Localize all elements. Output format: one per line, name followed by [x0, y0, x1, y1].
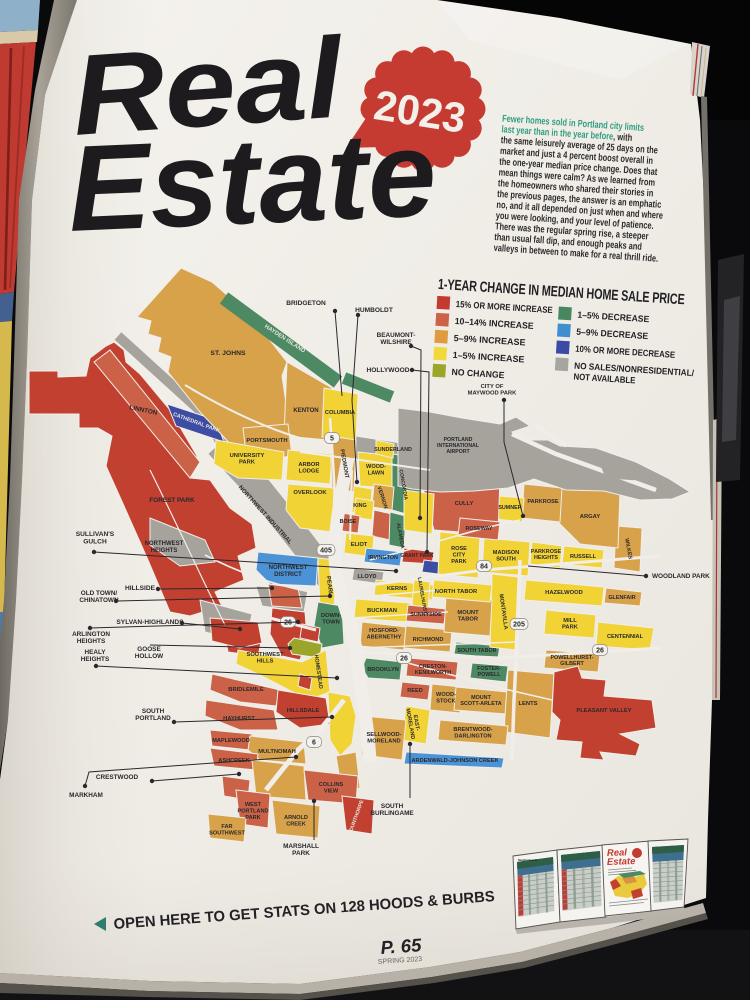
svg-text:26: 26 — [400, 656, 408, 663]
svg-text:REED: REED — [407, 688, 423, 694]
svg-text:HOSFORD-ABERNETHY: HOSFORD-ABERNETHY — [367, 628, 402, 640]
svg-text:MADISONSOUTH: MADISONSOUTH — [493, 550, 519, 562]
svg-text:SYLVAN-HIGHLANDS: SYLVAN-HIGHLANDS — [116, 619, 184, 626]
svg-text:HUMBOLDT: HUMBOLDT — [355, 307, 393, 314]
svg-text:COLUMBIA: COLUMBIA — [325, 410, 355, 416]
svg-text:CULLY: CULLY — [455, 501, 474, 507]
svg-text:CRESTON-KENILWORTH: CRESTON-KENILWORTH — [415, 664, 451, 676]
svg-text:SOUTH TABOR: SOUTH TABOR — [457, 648, 496, 654]
svg-text:SELLWOOD-MORELAND: SELLWOOD-MORELAND — [366, 732, 401, 745]
svg-text:MULTNOMAH: MULTNOMAH — [258, 749, 296, 755]
svg-text:MILLPARK: MILLPARK — [562, 618, 579, 631]
svg-text:5: 5 — [330, 436, 334, 443]
svg-text:ROSECITYPARK: ROSECITYPARK — [451, 546, 467, 565]
svg-text:Estate: Estate — [607, 856, 637, 868]
svg-text:GLENFAIR: GLENFAIR — [608, 595, 635, 601]
svg-text:RICHMOND: RICHMOND — [413, 637, 444, 643]
svg-text:BRIDGETON: BRIDGETON — [286, 300, 326, 307]
svg-text:WOODLAND PARK: WOODLAND PARK — [652, 573, 710, 580]
svg-text:MAPLEWOOD: MAPLEWOOD — [212, 738, 250, 744]
svg-text:Neighborhoods: Neighborhoods — [518, 858, 538, 862]
svg-text:ST. JOHNS: ST. JOHNS — [210, 350, 246, 357]
svg-text:ELIOT: ELIOT — [351, 542, 368, 548]
svg-text:HILLSDALE: HILLSDALE — [287, 708, 320, 714]
svg-text:FOREST PARK: FOREST PARK — [149, 497, 195, 504]
svg-text:405: 405 — [320, 548, 332, 555]
svg-text:RUSSELL: RUSSELL — [570, 554, 597, 560]
svg-text:6: 6 — [312, 740, 316, 747]
svg-text:DOWN-TOWN: DOWN-TOWN — [321, 613, 341, 626]
svg-text:CRESTWOOD: CRESTWOOD — [96, 774, 139, 781]
svg-text:BRENTWOOD-DARLINGTON: BRENTWOOD-DARLINGTON — [453, 727, 492, 739]
svg-text:HAZELWOOD: HAZELWOOD — [545, 590, 583, 596]
svg-text:PARKROSE: PARKROSE — [527, 499, 559, 505]
svg-text:HILLSIDE: HILLSIDE — [125, 585, 156, 592]
svg-text:BOISE: BOISE — [340, 519, 357, 525]
svg-text:KERNS: KERNS — [387, 586, 407, 592]
svg-text:PLEASANT VALLEY: PLEASANT VALLEY — [576, 708, 631, 714]
svg-text:IRVINGTON: IRVINGTON — [368, 555, 398, 561]
svg-text:ARGAY: ARGAY — [580, 514, 601, 520]
svg-text:OVERLOOK: OVERLOOK — [293, 490, 327, 496]
svg-text:84: 84 — [480, 564, 488, 571]
svg-text:PORTSMOUTH: PORTSMOUTH — [246, 438, 287, 444]
svg-text:CENTENNIAL: CENTENNIAL — [607, 634, 644, 640]
svg-text:NORTH TABOR: NORTH TABOR — [435, 589, 478, 595]
svg-text:GOOSEHOLLOW: GOOSEHOLLOW — [135, 646, 164, 660]
svg-text:WOOD-STOCK: WOOD-STOCK — [436, 692, 456, 704]
svg-text:ARBORLODGE: ARBORLODGE — [298, 462, 320, 475]
svg-text:ROSEWAY: ROSEWAY — [465, 526, 492, 532]
svg-text:GRANT PARK: GRANT PARK — [401, 553, 434, 559]
svg-text:KENTON: KENTON — [293, 408, 318, 414]
svg-text:MARKHAM: MARKHAM — [69, 792, 103, 799]
svg-text:SUNDERLAND: SUNDERLAND — [374, 447, 412, 453]
svg-text:OLD TOWN/CHINATOWN: OLD TOWN/CHINATOWN — [79, 590, 119, 604]
svg-text:BRIDLEMILE: BRIDLEMILE — [228, 687, 264, 693]
svg-text:26: 26 — [284, 620, 292, 627]
svg-text:205: 205 — [513, 622, 525, 629]
svg-text:FOSTER-POWELL: FOSTER-POWELL — [477, 666, 501, 678]
svg-text:ARLINGTONHEIGHTS: ARLINGTONHEIGHTS — [72, 631, 110, 645]
svg-text:LENTS: LENTS — [518, 701, 537, 707]
svg-text:SUMNER: SUMNER — [498, 505, 521, 511]
svg-text:ARNOLDCREEK: ARNOLDCREEK — [284, 815, 308, 827]
svg-text:MOUNTTABOR: MOUNTTABOR — [457, 610, 479, 623]
svg-text:HAYHURST: HAYHURST — [223, 716, 255, 722]
svg-text:BUCKMAN: BUCKMAN — [367, 608, 397, 614]
svg-text:BEAUMONT-WILSHIRE: BEAUMONT-WILSHIRE — [377, 332, 416, 346]
svg-text:WOOD-LAWN: WOOD-LAWN — [366, 464, 386, 476]
svg-text:SUNNYSIDE: SUNNYSIDE — [410, 612, 442, 618]
svg-text:NORTHWESTDISTRICT: NORTHWESTDISTRICT — [269, 565, 308, 578]
svg-text:HOLLYWOOD: HOLLYWOOD — [367, 367, 410, 374]
svg-text:BROOKLYN: BROOKLYN — [367, 667, 399, 673]
svg-text:26: 26 — [596, 648, 604, 655]
svg-text:LLOYD: LLOYD — [358, 574, 377, 580]
svg-text:ARDENWALD-JOHNSON CREEK: ARDENWALD-JOHNSON CREEK — [411, 758, 498, 764]
svg-text:P. 65: P. 65 — [380, 934, 423, 958]
svg-text:KING: KING — [353, 503, 366, 509]
svg-text:PARKROSEHEIGHTS: PARKROSEHEIGHTS — [531, 549, 562, 561]
